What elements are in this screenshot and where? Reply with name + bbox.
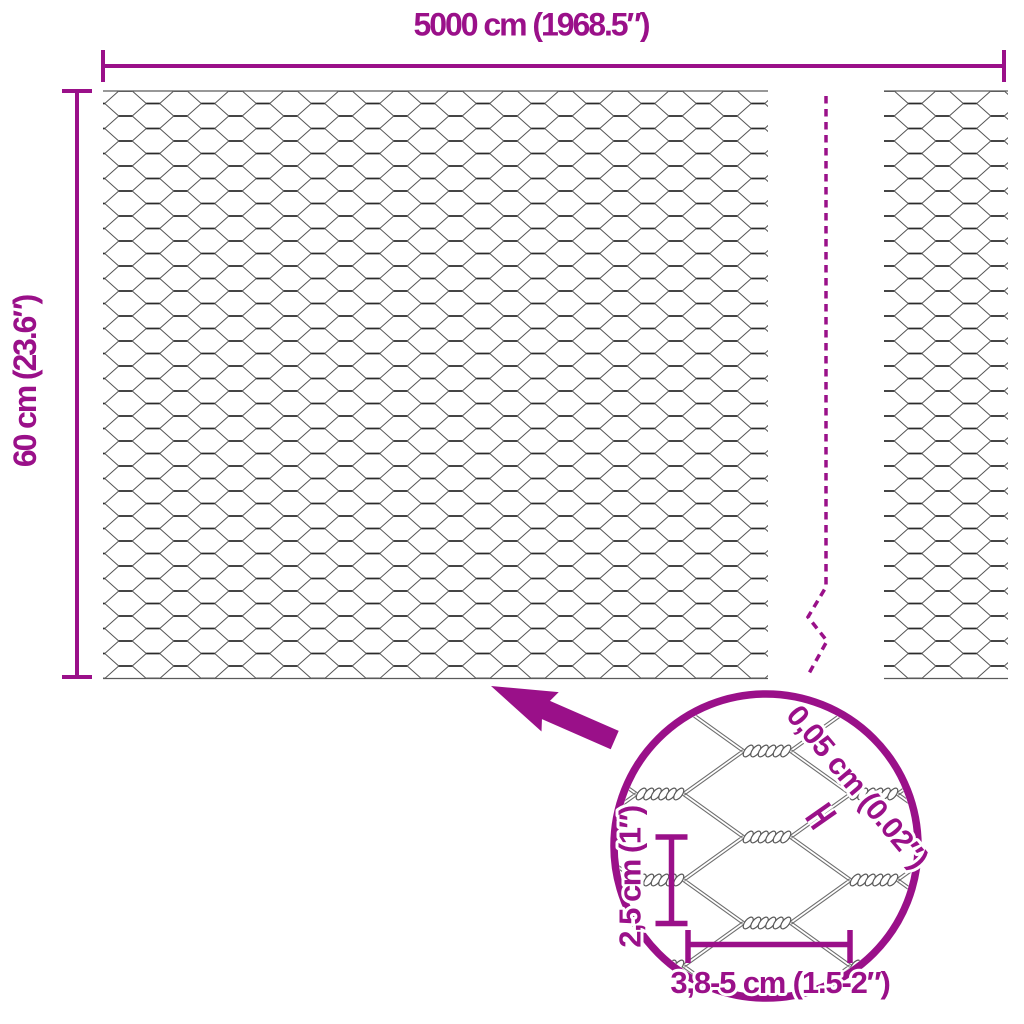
svg-text:60 cm (23.6″): 60 cm (23.6″)	[7, 294, 43, 467]
svg-text:3,8-5 cm (1.5-2″): 3,8-5 cm (1.5-2″)	[670, 965, 889, 1000]
svg-text:5000 cm (1968.5″): 5000 cm (1968.5″)	[414, 7, 650, 43]
svg-text:2,5 cm (1″): 2,5 cm (1″)	[613, 806, 648, 948]
